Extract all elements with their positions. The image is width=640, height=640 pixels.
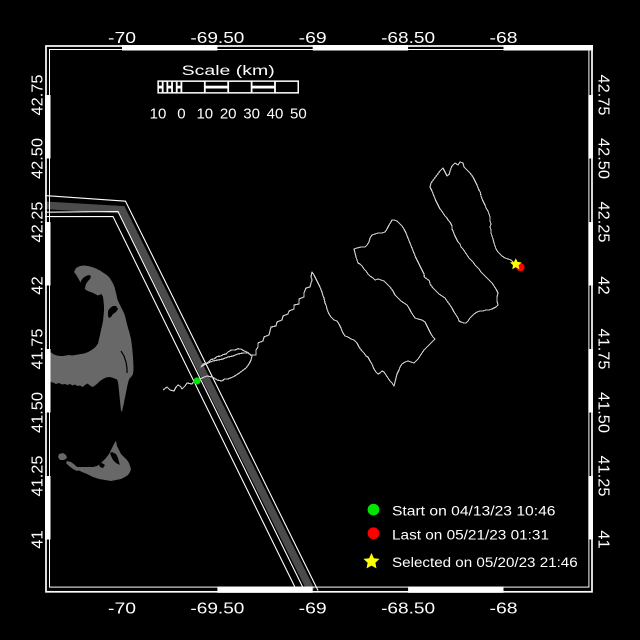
svg-text:41.50: 41.50 (30, 392, 47, 433)
svg-text:10: 10 (196, 106, 213, 123)
svg-text:42: 42 (595, 276, 612, 295)
svg-text:20: 20 (220, 106, 237, 123)
svg-text:41.75: 41.75 (595, 329, 612, 370)
svg-text:50: 50 (290, 106, 307, 123)
svg-text:-68: -68 (490, 601, 518, 618)
svg-text:-70: -70 (108, 30, 136, 47)
svg-text:42.25: 42.25 (595, 202, 612, 243)
svg-text:10: 10 (150, 106, 167, 123)
svg-text:42: 42 (30, 276, 47, 295)
svg-text:42.25: 42.25 (30, 202, 47, 243)
svg-text:42.50: 42.50 (30, 138, 47, 179)
svg-text:-68.50: -68.50 (381, 601, 435, 618)
svg-text:41.50: 41.50 (595, 392, 612, 433)
svg-text:41: 41 (30, 530, 47, 549)
svg-text:Scale (km): Scale (km) (182, 63, 275, 78)
svg-text:Selected on 05/20/23 21:46: Selected on 05/20/23 21:46 (392, 555, 578, 570)
svg-text:30: 30 (243, 106, 260, 123)
svg-text:-68.50: -68.50 (381, 30, 435, 47)
svg-text:Start on 04/13/23 10:46: Start on 04/13/23 10:46 (392, 504, 556, 519)
svg-text:-69.50: -69.50 (190, 601, 244, 618)
svg-text:-69: -69 (299, 30, 327, 47)
svg-text:42.75: 42.75 (595, 75, 612, 116)
svg-text:41.25: 41.25 (595, 456, 612, 497)
svg-text:-70: -70 (108, 601, 136, 618)
svg-text:41.75: 41.75 (30, 329, 47, 370)
svg-text:40: 40 (267, 106, 284, 123)
svg-text:42.50: 42.50 (595, 138, 612, 179)
svg-text:-69.50: -69.50 (190, 30, 244, 47)
svg-text:-69: -69 (299, 601, 327, 618)
svg-text:41.25: 41.25 (30, 456, 47, 497)
svg-text:Last on 05/21/23 01:31: Last on 05/21/23 01:31 (392, 528, 549, 543)
svg-text:-68: -68 (490, 30, 518, 47)
svg-text:41: 41 (595, 530, 612, 549)
svg-text:42.75: 42.75 (30, 75, 47, 116)
svg-text:0: 0 (177, 106, 185, 123)
